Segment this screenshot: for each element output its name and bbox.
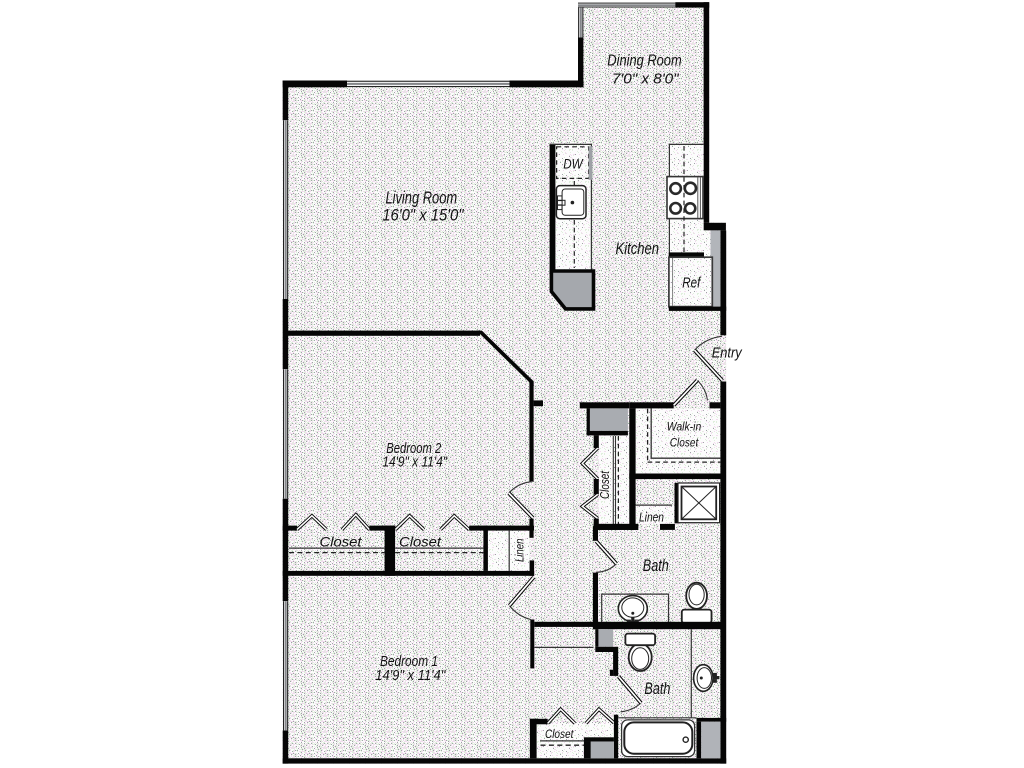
- svg-text:Linen: Linen: [515, 539, 527, 563]
- svg-text:Ref: Ref: [682, 274, 701, 291]
- svg-text:DW: DW: [563, 156, 584, 172]
- svg-text:Entry: Entry: [712, 344, 743, 361]
- svg-text:14'9" x 11'4": 14'9" x 11'4": [382, 455, 447, 471]
- svg-text:Bath: Bath: [643, 557, 669, 575]
- svg-text:Closet: Closet: [670, 435, 699, 449]
- svg-text:14'9" x 11'4": 14'9" x 11'4": [375, 668, 446, 684]
- svg-text:Walk-in: Walk-in: [667, 420, 702, 434]
- svg-text:Closet: Closet: [545, 729, 574, 741]
- svg-text:Kitchen: Kitchen: [616, 239, 660, 258]
- svg-text:16'0" x 15'0": 16'0" x 15'0": [382, 207, 464, 225]
- svg-text:Bath: Bath: [644, 680, 670, 698]
- svg-text:Closet: Closet: [597, 470, 612, 499]
- svg-text:7'0" x 8'0": 7'0" x 8'0": [612, 71, 679, 88]
- svg-text:Living Room: Living Room: [385, 188, 457, 208]
- svg-text:Linen: Linen: [639, 510, 664, 524]
- svg-text:Closet: Closet: [320, 533, 363, 549]
- svg-text:Closet: Closet: [399, 533, 442, 549]
- svg-text:Dining Room: Dining Room: [607, 53, 681, 70]
